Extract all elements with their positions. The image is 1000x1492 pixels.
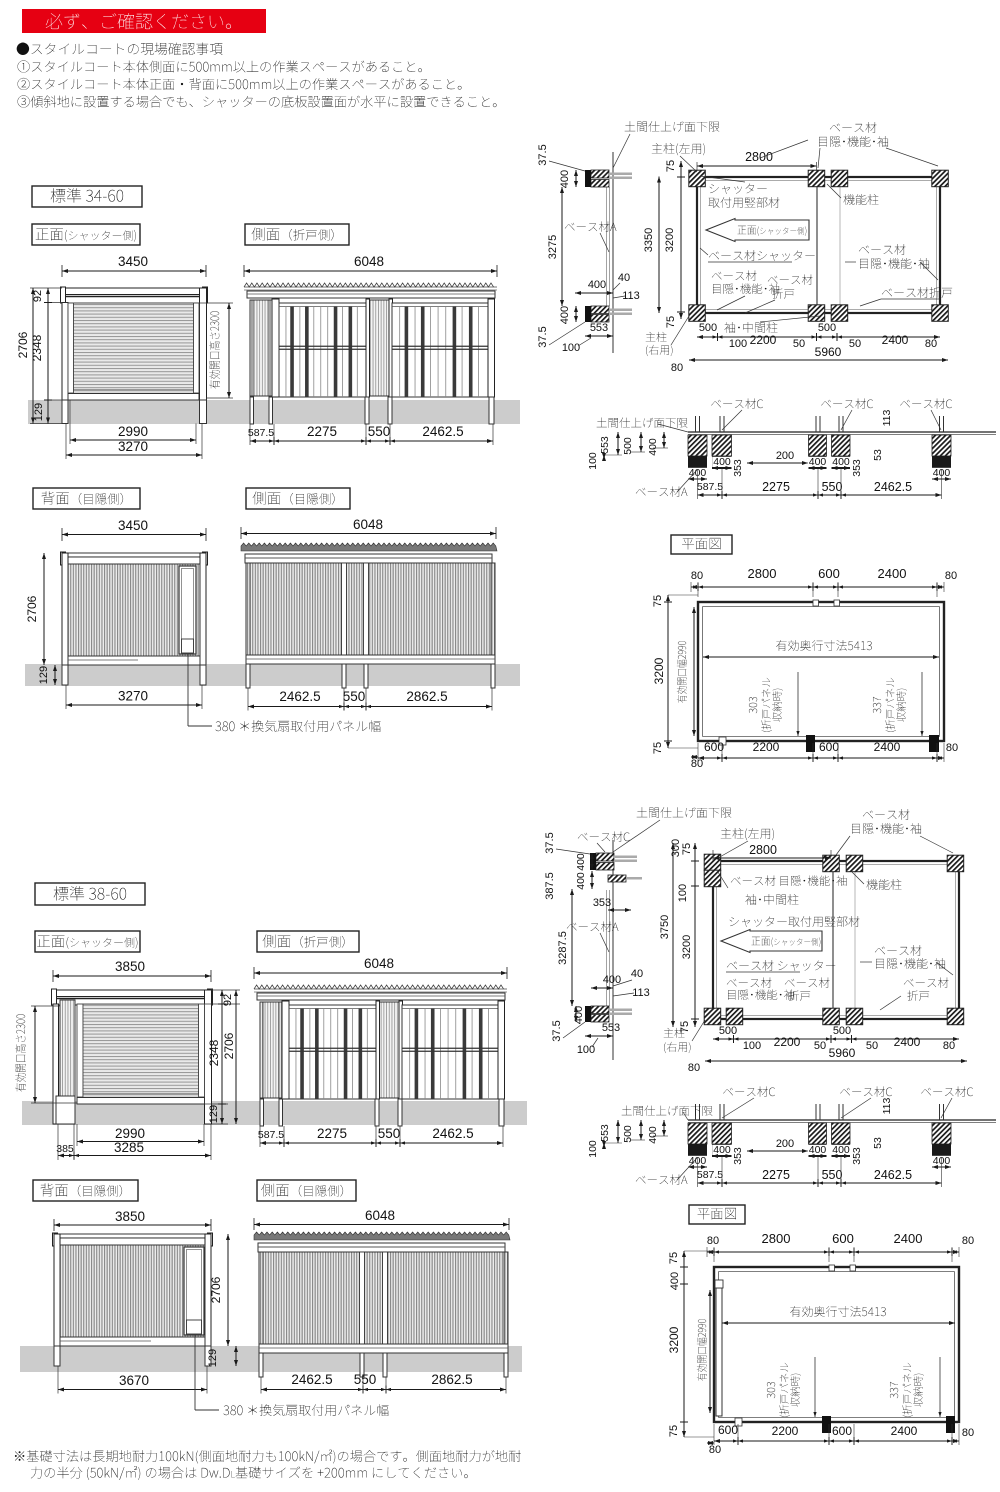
svg-text:200: 200 (776, 450, 794, 462)
svg-text:550: 550 (368, 424, 391, 439)
svg-text:2706: 2706 (25, 595, 39, 622)
svg-text:3287.5: 3287.5 (557, 931, 569, 965)
svg-text:92: 92 (32, 290, 44, 302)
svg-text:400: 400 (559, 306, 571, 324)
svg-text:75: 75 (665, 316, 677, 328)
svg-text:75: 75 (652, 595, 664, 607)
svg-text:2706: 2706 (209, 1276, 223, 1303)
svg-text:400: 400 (647, 438, 659, 456)
svg-text:6048: 6048 (364, 956, 394, 971)
svg-text:550: 550 (378, 1126, 401, 1141)
svg-text:553: 553 (590, 322, 608, 334)
svg-text:587.5: 587.5 (697, 1169, 723, 1181)
svg-text:600: 600 (704, 740, 724, 754)
svg-text:113: 113 (881, 1097, 893, 1114)
svg-text:2348: 2348 (30, 334, 44, 361)
svg-text:53: 53 (872, 449, 884, 461)
svg-text:2462.5: 2462.5 (874, 480, 912, 494)
svg-text:6048: 6048 (353, 517, 383, 532)
svg-text:2462.5: 2462.5 (874, 1168, 912, 1182)
svg-text:2400: 2400 (891, 1424, 918, 1438)
svg-text:75: 75 (652, 742, 664, 754)
svg-text:2462.5: 2462.5 (422, 424, 463, 439)
svg-text:3200: 3200 (652, 657, 666, 684)
svg-text:2462.5: 2462.5 (291, 1372, 332, 1387)
svg-text:2706: 2706 (222, 1032, 236, 1059)
svg-text:75: 75 (668, 1252, 680, 1264)
svg-text:2275: 2275 (762, 1168, 790, 1182)
svg-text:6048: 6048 (354, 254, 384, 269)
svg-text:100: 100 (729, 338, 747, 350)
svg-text:2275: 2275 (317, 1126, 347, 1141)
svg-text:80: 80 (671, 362, 683, 374)
svg-text:553: 553 (602, 1022, 620, 1034)
svg-text:3200: 3200 (664, 228, 676, 252)
svg-text:2200: 2200 (774, 1035, 801, 1049)
svg-text:553: 553 (599, 1124, 611, 1142)
svg-text:75: 75 (681, 843, 693, 855)
svg-text:80: 80 (925, 338, 937, 350)
svg-text:100: 100 (587, 1140, 599, 1158)
svg-text:500: 500 (719, 1025, 737, 1037)
svg-text:500: 500 (833, 1025, 851, 1037)
svg-text:2275: 2275 (307, 424, 337, 439)
svg-text:2400: 2400 (874, 740, 901, 754)
svg-text:100: 100 (562, 342, 580, 354)
svg-text:80: 80 (945, 570, 957, 582)
svg-text:50: 50 (849, 338, 861, 350)
svg-text:500: 500 (699, 322, 717, 334)
svg-text:587.5: 587.5 (248, 427, 274, 439)
svg-text:400: 400 (575, 853, 587, 871)
svg-text:385: 385 (56, 1143, 74, 1155)
svg-text:353: 353 (851, 459, 863, 477)
svg-text:37.5: 37.5 (537, 144, 549, 165)
svg-text:3275: 3275 (547, 235, 559, 259)
svg-text:2706: 2706 (16, 331, 30, 358)
svg-text:100: 100 (677, 884, 689, 902)
svg-text:37.5: 37.5 (537, 326, 549, 347)
svg-text:2462.5: 2462.5 (432, 1126, 473, 1141)
svg-text:2990: 2990 (118, 424, 148, 439)
svg-text:3350: 3350 (643, 228, 655, 252)
svg-text:353: 353 (732, 1147, 744, 1165)
svg-text:3270: 3270 (118, 689, 148, 704)
svg-text:2200: 2200 (772, 1424, 799, 1438)
svg-text:129: 129 (33, 403, 45, 421)
svg-text:353: 353 (593, 897, 611, 909)
svg-text:400: 400 (575, 872, 587, 890)
svg-text:2400: 2400 (894, 1035, 921, 1049)
svg-text:2862.5: 2862.5 (431, 1372, 472, 1387)
svg-text:400: 400 (559, 170, 571, 188)
svg-text:37.5: 37.5 (551, 1020, 563, 1041)
svg-text:2800: 2800 (748, 566, 777, 581)
svg-text:2275: 2275 (762, 480, 790, 494)
svg-text:129: 129 (38, 666, 50, 684)
svg-text:50: 50 (866, 1040, 878, 1052)
svg-text:600: 600 (819, 740, 839, 754)
svg-text:553: 553 (599, 436, 611, 454)
svg-text:587.5: 587.5 (697, 481, 723, 493)
svg-text:550: 550 (354, 1372, 377, 1387)
svg-text:113: 113 (881, 409, 893, 426)
svg-text:600: 600 (832, 1424, 852, 1438)
svg-text:3200: 3200 (667, 1326, 681, 1353)
svg-text:100: 100 (587, 452, 599, 470)
svg-text:80: 80 (688, 1062, 700, 1074)
svg-text:400: 400 (647, 1126, 659, 1144)
svg-text:550: 550 (343, 689, 366, 704)
svg-text:600: 600 (718, 1423, 738, 1437)
svg-text:400: 400 (832, 1144, 850, 1156)
svg-text:400: 400 (713, 456, 731, 468)
svg-text:40: 40 (618, 272, 630, 284)
svg-text:80: 80 (707, 1235, 719, 1247)
svg-text:387.5: 387.5 (544, 872, 556, 900)
svg-text:5960: 5960 (829, 1046, 856, 1060)
svg-text:3670: 3670 (119, 1373, 149, 1388)
svg-text:353: 353 (732, 459, 744, 477)
svg-text:3450: 3450 (118, 254, 148, 269)
svg-text:75: 75 (668, 1425, 680, 1437)
svg-text:2800: 2800 (749, 843, 777, 857)
svg-text:80: 80 (962, 1235, 974, 1247)
svg-text:400: 400 (573, 1006, 585, 1024)
svg-text:3850: 3850 (115, 1209, 145, 1224)
svg-text:80: 80 (691, 570, 703, 582)
svg-text:400: 400 (809, 456, 827, 468)
svg-text:400: 400 (669, 1272, 681, 1290)
svg-text:3270: 3270 (118, 439, 148, 454)
svg-text:37.5: 37.5 (544, 832, 556, 853)
svg-text:129: 129 (207, 1349, 219, 1367)
svg-text:500: 500 (622, 437, 634, 455)
svg-text:2400: 2400 (882, 333, 909, 347)
svg-text:400: 400 (832, 456, 850, 468)
svg-text:80: 80 (691, 758, 703, 770)
svg-text:600: 600 (818, 566, 840, 581)
svg-text:353: 353 (851, 1147, 863, 1165)
svg-text:6048: 6048 (365, 1208, 395, 1223)
svg-text:400: 400 (588, 279, 606, 291)
svg-text:50: 50 (814, 1040, 826, 1052)
svg-text:53: 53 (872, 1137, 884, 1149)
svg-text:2800: 2800 (762, 1231, 791, 1246)
svg-text:80: 80 (709, 1444, 721, 1456)
svg-text:3450: 3450 (118, 518, 148, 533)
svg-text:400: 400 (713, 1144, 731, 1156)
svg-text:200: 200 (776, 1138, 794, 1150)
svg-text:550: 550 (822, 1168, 843, 1182)
svg-text:2200: 2200 (750, 333, 777, 347)
svg-text:80: 80 (946, 742, 958, 754)
svg-text:3850: 3850 (115, 959, 145, 974)
svg-text:400: 400 (809, 1144, 827, 1156)
svg-text:3750: 3750 (659, 915, 671, 939)
svg-text:100: 100 (743, 1040, 761, 1052)
svg-text:129: 129 (208, 1105, 220, 1123)
svg-text:2462.5: 2462.5 (279, 689, 320, 704)
svg-text:500: 500 (622, 1125, 634, 1143)
svg-text:2400: 2400 (878, 566, 907, 581)
svg-text:2200: 2200 (753, 740, 780, 754)
svg-text:600: 600 (832, 1231, 854, 1246)
svg-text:80: 80 (943, 1040, 955, 1052)
svg-text:5960: 5960 (815, 345, 842, 359)
svg-text:2348: 2348 (207, 1039, 221, 1066)
svg-text:500: 500 (818, 322, 836, 334)
svg-text:113: 113 (632, 987, 650, 999)
svg-text:2862.5: 2862.5 (406, 689, 447, 704)
svg-text:80: 80 (962, 1427, 974, 1439)
svg-text:3285: 3285 (114, 1140, 144, 1155)
svg-text:2990: 2990 (115, 1126, 145, 1141)
svg-text:3200: 3200 (681, 935, 693, 959)
svg-text:50: 50 (793, 338, 805, 350)
svg-text:550: 550 (822, 480, 843, 494)
svg-text:2800: 2800 (745, 150, 773, 164)
svg-text:587.5: 587.5 (258, 1129, 284, 1141)
svg-text:40: 40 (631, 968, 643, 980)
svg-text:92: 92 (222, 994, 234, 1006)
svg-text:75: 75 (679, 1021, 691, 1033)
svg-text:75: 75 (665, 160, 677, 172)
svg-text:2400: 2400 (894, 1231, 923, 1246)
